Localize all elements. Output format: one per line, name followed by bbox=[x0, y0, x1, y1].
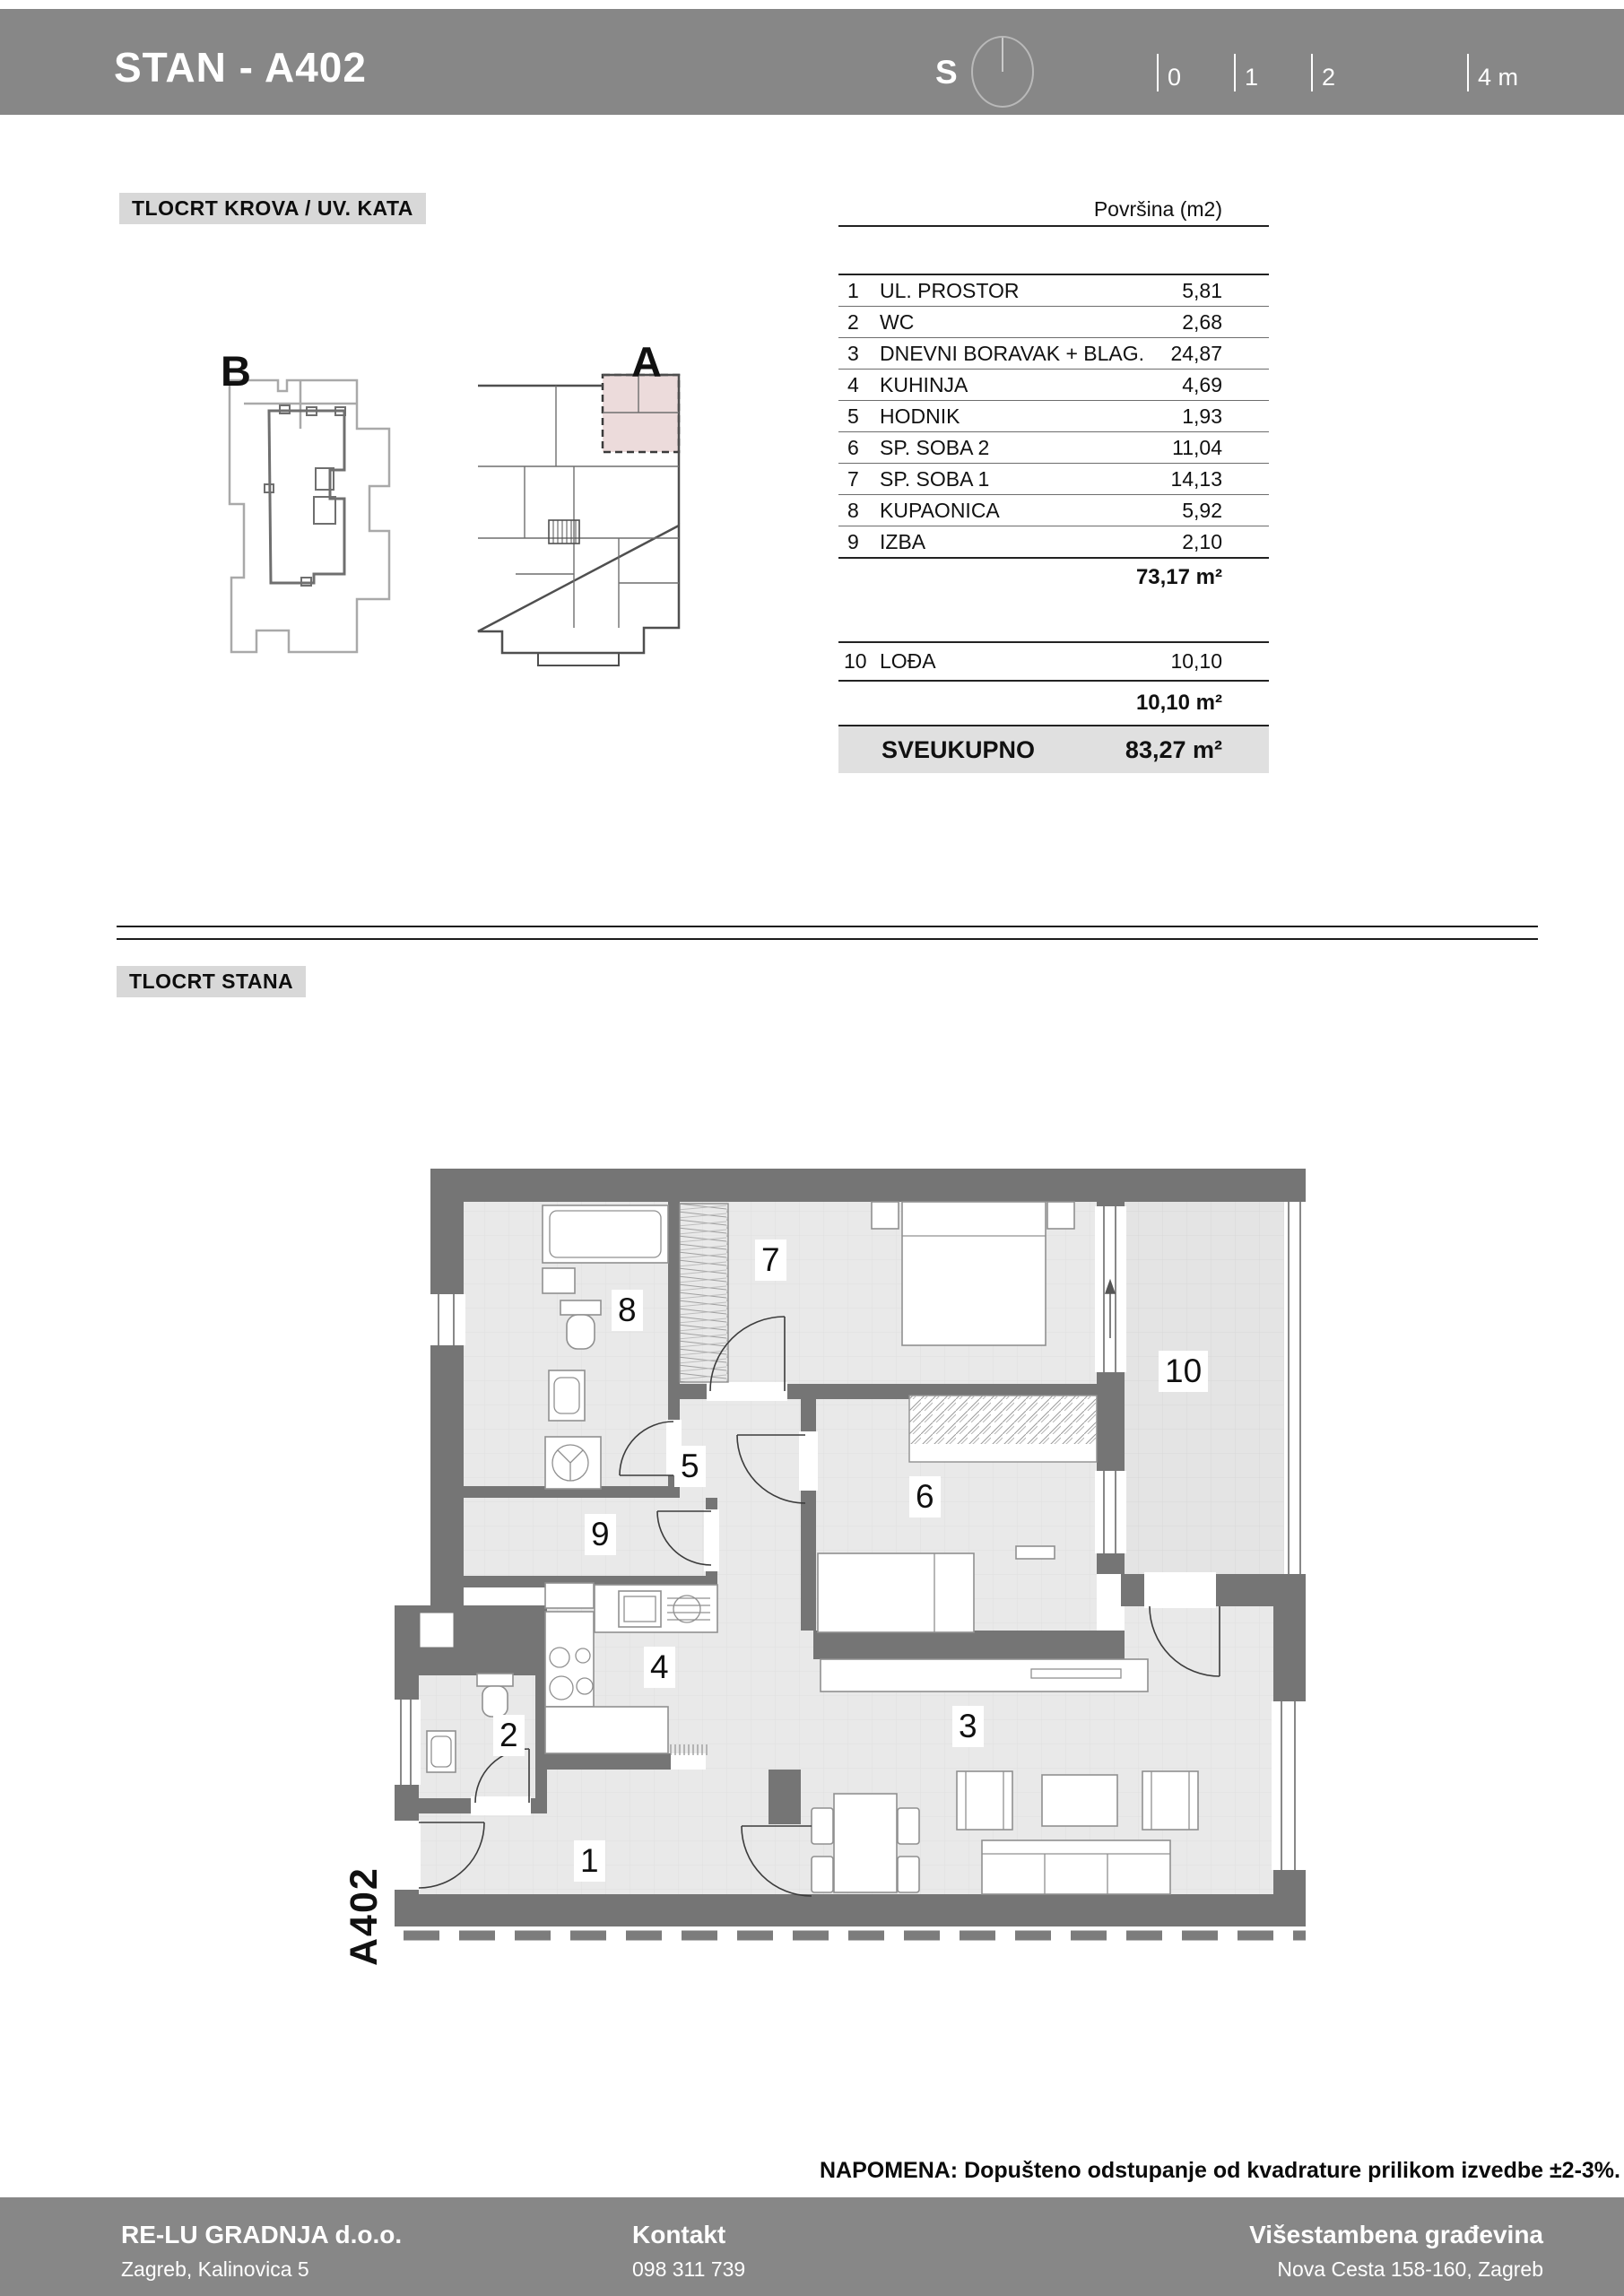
room-label-5: 5 bbox=[674, 1446, 706, 1487]
sofa bbox=[982, 1840, 1170, 1894]
cabinet bbox=[545, 1583, 594, 1608]
divider-line bbox=[117, 938, 1538, 940]
row-value: 5,81 bbox=[1182, 275, 1222, 306]
row-name: LOĐA bbox=[880, 643, 936, 680]
row-name: IZBA bbox=[880, 526, 925, 557]
page-title: STAN - A402 bbox=[114, 43, 367, 91]
armchair bbox=[957, 1771, 1012, 1830]
room-label-1: 1 bbox=[574, 1840, 605, 1882]
contact-phone: 098 311 739 bbox=[632, 2253, 745, 2285]
scale-tick-1 bbox=[1234, 54, 1236, 91]
row-value: 24,87 bbox=[1170, 338, 1222, 369]
footer-project: Višestambena građevina Nova Cesta 158-16… bbox=[1249, 2217, 1543, 2285]
bath-shelf bbox=[543, 1268, 575, 1293]
plan-b-outline bbox=[230, 380, 389, 652]
divider-line bbox=[117, 926, 1538, 927]
row-name: DNEVNI BORAVAK + BLAG. bbox=[880, 338, 1144, 369]
dining-table bbox=[834, 1794, 897, 1892]
subtotal-value: 73,17 m² bbox=[1136, 559, 1222, 596]
row-value: 10,10 bbox=[1170, 643, 1222, 680]
row-name: HODNIK bbox=[880, 401, 960, 431]
plan-b-letter: B bbox=[221, 346, 251, 396]
double-bed bbox=[902, 1202, 1046, 1345]
row-num: 8 bbox=[847, 495, 859, 526]
row-num: 1 bbox=[847, 275, 859, 306]
sideboard bbox=[821, 1659, 1148, 1692]
chair bbox=[812, 1857, 833, 1892]
table-row: 4KUHINJA4,69 bbox=[838, 370, 1269, 401]
row-name: SP. SOBA 1 bbox=[880, 464, 989, 494]
row-num: 5 bbox=[847, 401, 859, 431]
table-row: 1UL. PROSTOR5,81 bbox=[838, 275, 1269, 307]
project-name: Višestambena građevina bbox=[1249, 2217, 1543, 2253]
row-num: 9 bbox=[847, 526, 859, 557]
table-row: 7SP. SOBA 114,13 bbox=[838, 464, 1269, 495]
table-row: 5HODNIK1,93 bbox=[838, 401, 1269, 432]
table-row: 3DNEVNI BORAVAK + BLAG.24,87 bbox=[838, 338, 1269, 370]
footer-bar: RE-LU GRADNJA d.o.o. Zagreb, Kalinovica … bbox=[0, 2197, 1624, 2296]
company-name: RE-LU GRADNJA d.o.o. bbox=[121, 2217, 402, 2253]
unit-plan-badge: TLOCRT STANA bbox=[117, 966, 306, 997]
table-row: 2WC2,68 bbox=[838, 307, 1269, 338]
row-num: 10 bbox=[844, 643, 867, 680]
total-label: SVEUKUPNO bbox=[881, 726, 1035, 773]
row-name: WC bbox=[880, 307, 914, 337]
nightstand bbox=[872, 1202, 899, 1229]
room-label-8: 8 bbox=[612, 1290, 643, 1331]
company-address: Zagreb, Kalinovica 5 bbox=[121, 2253, 402, 2285]
row-value: 14,13 bbox=[1170, 464, 1222, 494]
chair bbox=[812, 1808, 833, 1844]
total-row: SVEUKUPNO 83,27 m² bbox=[838, 725, 1269, 773]
total-value: 83,27 m² bbox=[1125, 726, 1222, 773]
toilet-tank bbox=[560, 1300, 601, 1315]
key-plans-drawing bbox=[179, 332, 753, 709]
note-text: NAPOMENA: Dopušteno odstupanje od kvadra… bbox=[820, 2158, 1620, 2184]
row-name: SP. SOBA 2 bbox=[880, 432, 989, 463]
shelf bbox=[1016, 1546, 1055, 1559]
room-label-9: 9 bbox=[585, 1514, 616, 1555]
coffee-table bbox=[1042, 1775, 1117, 1826]
row-value: 5,92 bbox=[1182, 495, 1222, 526]
compass-icon bbox=[968, 30, 1040, 111]
plan-sheet: STAN - A402 S 0 1 2 4 m TLOCRT KROVA / U… bbox=[0, 0, 1624, 2296]
apartment-code: A402 bbox=[343, 1876, 386, 1966]
scale-label-2: 2 bbox=[1322, 64, 1335, 91]
toilet-bowl bbox=[567, 1315, 595, 1349]
wardrobe bbox=[680, 1204, 728, 1382]
stairs-icon bbox=[549, 520, 579, 544]
row-value: 1,93 bbox=[1182, 401, 1222, 431]
row-num: 7 bbox=[847, 464, 859, 494]
area-column-header: Površina (m2) bbox=[1094, 197, 1222, 222]
scale-tick-2 bbox=[1311, 54, 1313, 91]
row-value: 4,69 bbox=[1182, 370, 1222, 400]
plan-b-apartment-outline bbox=[265, 405, 345, 586]
area-table-body: 1UL. PROSTOR5,81 2WC2,68 3DNEVNI BORAVAK… bbox=[838, 274, 1269, 559]
room-label-6: 6 bbox=[909, 1476, 941, 1518]
subtotal-value: 10,10 m² bbox=[1136, 682, 1222, 725]
scale-tick-4 bbox=[1467, 54, 1469, 91]
row-name: KUPAONICA bbox=[880, 495, 1000, 526]
footer-contact: Kontakt 098 311 739 bbox=[632, 2217, 745, 2285]
subtotal-interior: 73,17 m² bbox=[838, 559, 1269, 596]
row-num: 3 bbox=[847, 338, 859, 369]
scale-label-0: 0 bbox=[1168, 64, 1181, 91]
scale-label-4: 4 m bbox=[1478, 64, 1518, 91]
scale-tick-0 bbox=[1157, 54, 1159, 91]
chair bbox=[898, 1808, 919, 1844]
floor-plan-drawing bbox=[386, 1148, 1354, 1955]
row-num: 4 bbox=[847, 370, 859, 400]
roof-plan-badge: TLOCRT KROVA / UV. KATA bbox=[119, 193, 426, 224]
row-value: 11,04 bbox=[1172, 432, 1222, 463]
lower-counter bbox=[545, 1707, 668, 1753]
header-bar: STAN - A402 S 0 1 2 4 m bbox=[0, 9, 1624, 115]
row-name: UL. PROSTOR bbox=[880, 275, 1020, 306]
row-num: 2 bbox=[847, 307, 859, 337]
room-label-7: 7 bbox=[755, 1239, 786, 1281]
room-label-3: 3 bbox=[952, 1706, 984, 1747]
room-label-10: 10 bbox=[1159, 1351, 1208, 1392]
loggia-row-wrap: 10LOĐA10,10 bbox=[838, 641, 1269, 682]
table-row: 9IZBA2,10 bbox=[838, 526, 1269, 559]
area-table-header: Površina (m2) bbox=[838, 196, 1269, 227]
room-label-4: 4 bbox=[644, 1647, 675, 1688]
project-address: Nova Cesta 158-160, Zagreb bbox=[1249, 2253, 1543, 2285]
row-value: 2,10 bbox=[1182, 526, 1222, 557]
plan-a-drawing bbox=[478, 375, 679, 665]
room-label-2: 2 bbox=[493, 1715, 525, 1756]
row-name: KUHINJA bbox=[880, 370, 968, 400]
toilet-tank bbox=[477, 1674, 513, 1686]
chair bbox=[898, 1857, 919, 1892]
bed bbox=[818, 1553, 974, 1632]
compass-north-label: S bbox=[935, 54, 958, 91]
contact-label: Kontakt bbox=[632, 2217, 745, 2253]
nightstand bbox=[1047, 1202, 1074, 1229]
armchair bbox=[1142, 1771, 1198, 1830]
row-value: 2,68 bbox=[1182, 307, 1222, 337]
subtotal-loggia: 10,10 m² bbox=[838, 682, 1269, 725]
bathtub bbox=[543, 1205, 668, 1263]
footer-company: RE-LU GRADNJA d.o.o. Zagreb, Kalinovica … bbox=[121, 2217, 402, 2285]
plan-a-letter: A bbox=[631, 337, 662, 387]
area-table: Površina (m2) 1UL. PROSTOR5,81 2WC2,68 3… bbox=[838, 196, 1269, 773]
toilet-bowl bbox=[482, 1686, 508, 1717]
table-row: 10LOĐA10,10 bbox=[838, 643, 1269, 682]
table-row: 6SP. SOBA 211,04 bbox=[838, 432, 1269, 464]
row-num: 6 bbox=[847, 432, 859, 463]
table-row: 8KUPAONICA5,92 bbox=[838, 495, 1269, 526]
scale-label-1: 1 bbox=[1245, 64, 1258, 91]
shaft bbox=[419, 1612, 455, 1648]
